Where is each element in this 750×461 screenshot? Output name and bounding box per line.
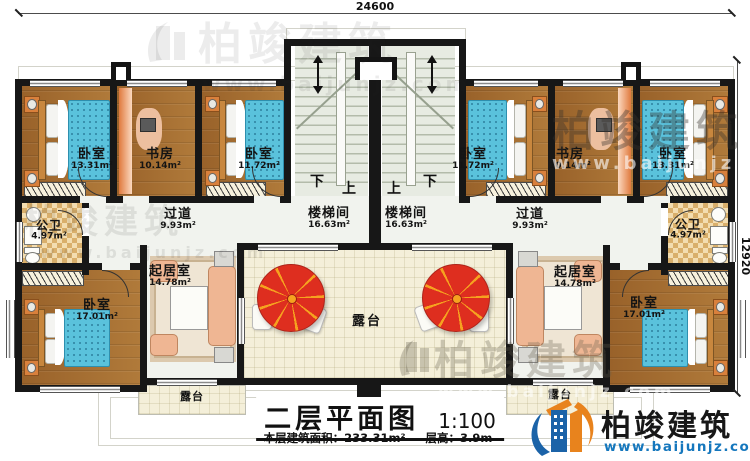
- side-table: [518, 347, 538, 363]
- room-label-bedroom: 卧室13.31m²: [652, 148, 694, 172]
- room-label-terrace: 露台: [352, 315, 382, 329]
- pillow: [695, 339, 707, 364]
- door-opening: [470, 196, 496, 203]
- bed-headboard: [707, 309, 714, 367]
- door-opening: [80, 196, 106, 203]
- coffee-table: [170, 286, 208, 330]
- computer-icon: [596, 118, 612, 132]
- dimension-line-right: [737, 60, 738, 393]
- room-label-corridor: 过道9.93m²: [512, 208, 548, 232]
- window: [212, 80, 276, 87]
- window: [650, 80, 720, 87]
- dimension-label-top: 24600: [352, 0, 398, 13]
- pillow: [693, 104, 706, 138]
- arrow-up-icon: [427, 55, 437, 63]
- armchair: [150, 334, 178, 356]
- sofa: [208, 266, 236, 346]
- door-opening: [601, 196, 627, 203]
- nightstand: [712, 170, 728, 187]
- room-label-bedroom: 卧室17.01m²: [76, 299, 118, 323]
- wall: [195, 86, 202, 203]
- flue: [355, 57, 397, 80]
- stair-label-down: 下: [423, 171, 437, 191]
- nightstand: [532, 96, 547, 112]
- area-note-value: 233.31m²: [344, 431, 405, 445]
- arrow-down-icon: [313, 86, 323, 94]
- area-note-label: 本层建筑面积：: [264, 431, 345, 445]
- pillow: [514, 142, 526, 176]
- stair-direction-arrow: [317, 62, 319, 88]
- sink-icon: [711, 207, 726, 222]
- window: [127, 80, 187, 87]
- room-label-corridor: 过道9.93m²: [160, 208, 196, 232]
- window: [16, 222, 23, 262]
- bed-headboard: [38, 100, 46, 180]
- umbrella-icon: [422, 264, 490, 332]
- wall: [15, 263, 89, 270]
- bed-headboard: [219, 100, 226, 180]
- brand-logo-icon: [146, 16, 198, 64]
- door-opening: [123, 196, 149, 203]
- nightstand: [24, 360, 39, 376]
- wall: [284, 39, 466, 46]
- stair-direction-arrow: [431, 62, 433, 88]
- hatch-strip: [22, 271, 84, 286]
- bed-headboard: [38, 309, 45, 367]
- flue: [111, 62, 131, 80]
- room-label-stairwell: 楼梯间16.63m²: [385, 207, 427, 231]
- room-label-terrace: 露台: [180, 391, 204, 403]
- stair-rail-right: [406, 52, 416, 186]
- nightstand: [205, 170, 220, 186]
- window: [474, 80, 538, 87]
- window: [533, 379, 593, 386]
- pillow: [695, 313, 707, 338]
- room-label-bedroom: 卧室11.72m²: [238, 148, 280, 172]
- sliding-door: [238, 298, 245, 344]
- window: [30, 80, 100, 87]
- wall: [603, 245, 610, 392]
- window: [630, 386, 710, 393]
- stair-label-up: 上: [342, 178, 356, 198]
- wall: [661, 263, 735, 270]
- door-opening: [644, 196, 670, 203]
- room-label-bedroom: 卧室13.31m²: [71, 148, 113, 172]
- window: [157, 379, 217, 386]
- window: [563, 80, 623, 87]
- wall: [548, 86, 555, 203]
- bay-window: [6, 300, 15, 358]
- room-label-bath: 公卫4.97m²: [670, 218, 706, 241]
- stair-rail-left: [336, 52, 346, 186]
- armchair: [574, 334, 602, 356]
- sliding-door: [507, 298, 514, 344]
- window: [258, 244, 338, 251]
- floor-height-label: 层高：: [426, 431, 461, 445]
- door-opening: [661, 208, 668, 236]
- nightstand: [24, 299, 39, 315]
- room-label-bedroom: 卧室17.01m²: [623, 297, 665, 321]
- computer-icon: [140, 118, 156, 132]
- wall: [633, 86, 640, 203]
- side-table: [518, 251, 538, 267]
- arrow-up-icon: [313, 55, 323, 63]
- side-table: [214, 251, 234, 267]
- bay-window: [737, 300, 746, 358]
- window: [729, 222, 736, 262]
- wall: [459, 46, 466, 203]
- wall: [140, 245, 147, 392]
- nightstand: [713, 360, 728, 376]
- room-label-bedroom: 卧室11.72m²: [452, 148, 494, 172]
- stair-label-up: 上: [387, 178, 401, 198]
- nightstand: [712, 96, 728, 113]
- door-opening: [102, 263, 130, 270]
- wall: [15, 196, 284, 203]
- wall: [284, 46, 291, 203]
- window: [40, 386, 120, 393]
- pillow: [514, 104, 526, 138]
- dimension-line-top: [18, 13, 732, 14]
- window: [412, 244, 492, 251]
- nightstand: [205, 96, 220, 112]
- pillow: [693, 142, 706, 176]
- washer-icon: [710, 226, 728, 245]
- stair-label-down: 下: [310, 171, 324, 191]
- flue: [621, 62, 641, 80]
- hatch-strip: [668, 271, 730, 286]
- door-opening: [82, 208, 89, 236]
- coffee-table: [544, 286, 582, 330]
- arrow-down-icon: [427, 86, 437, 94]
- door-opening: [254, 196, 280, 203]
- desk-counter: [119, 88, 132, 194]
- room-label-living: 起居室14.78m²: [149, 265, 191, 289]
- sofa: [516, 266, 544, 346]
- title-subtext: 本层建筑面积：233.31m²层高：3.9m: [264, 430, 493, 446]
- door-opening: [620, 263, 648, 270]
- wall: [110, 86, 117, 203]
- brand-website: www.baijunjz.com: [604, 439, 750, 455]
- room-label-bath: 公卫4.97m²: [31, 219, 67, 242]
- nightstand: [713, 299, 728, 315]
- room-label-living: 起居室14.78m²: [554, 266, 596, 290]
- bed-headboard: [526, 100, 533, 180]
- floor-plan-canvas: 卧室13.31m² 书房10.14m² 卧室11.72m² 楼梯间16.63m²…: [0, 0, 750, 461]
- floor-height-value: 3.9m: [460, 431, 492, 445]
- bed-headboard: [706, 100, 714, 180]
- umbrella-icon: [257, 264, 325, 332]
- brand-logo-icon: [526, 396, 602, 460]
- side-table: [214, 347, 234, 363]
- room-label-study: 书房10.14m²: [139, 148, 181, 172]
- dimension-label-right: 12920: [739, 234, 750, 278]
- desk-counter: [618, 88, 631, 194]
- nightstand: [532, 170, 547, 186]
- pillar: [357, 378, 381, 398]
- room-label-stairwell: 楼梯间16.63m²: [308, 207, 350, 231]
- room-label-study: 书房10.14m²: [549, 148, 591, 172]
